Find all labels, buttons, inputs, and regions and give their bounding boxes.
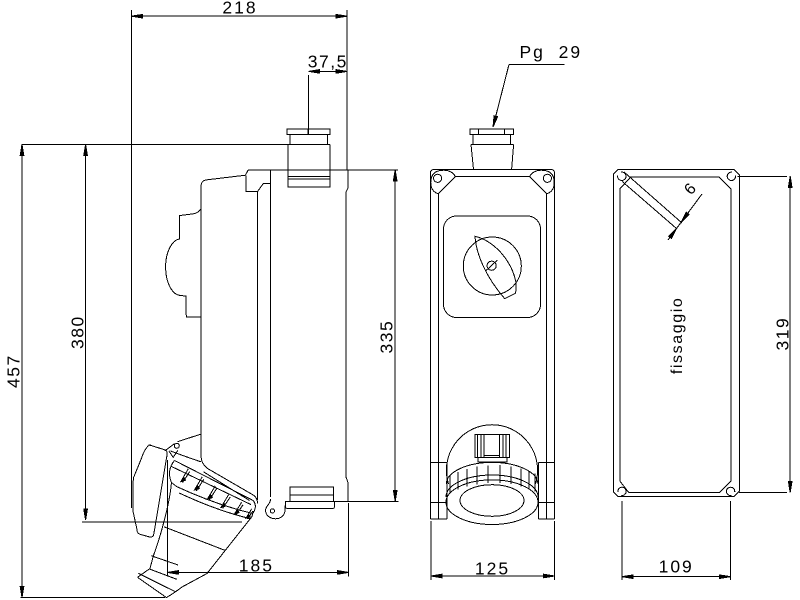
- svg-text:319: 319: [773, 317, 793, 351]
- svg-text:6: 6: [681, 180, 700, 198]
- svg-text:335: 335: [377, 320, 397, 354]
- svg-text:37,5: 37,5: [308, 52, 348, 72]
- svg-text:109: 109: [659, 557, 694, 577]
- svg-text:218: 218: [222, 0, 257, 17]
- svg-text:185: 185: [239, 556, 274, 576]
- svg-text:Pg 29: Pg 29: [520, 42, 583, 62]
- svg-text:380: 380: [68, 315, 88, 349]
- svg-text:125: 125: [475, 558, 510, 578]
- svg-text:457: 457: [3, 354, 23, 388]
- svg-text:fissaggio: fissaggio: [669, 297, 686, 375]
